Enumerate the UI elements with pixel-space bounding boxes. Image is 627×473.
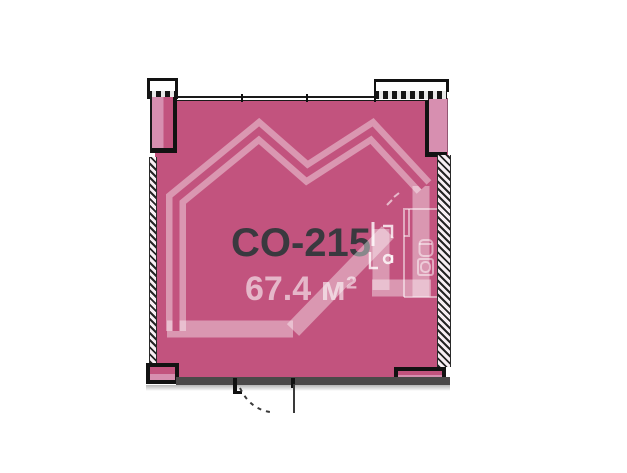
wall-shadow [146,385,450,391]
glazed-wall-left [149,157,157,363]
window-mullion [306,94,308,102]
balcony-tab-left [147,78,178,92]
unit-area-highlight[interactable] [155,157,437,377]
door-jamb-hook [233,391,242,394]
shaft-wall-left [425,97,429,157]
wall-bottom [176,377,450,385]
wall-bracket-bottom-left [146,363,179,384]
wall-pilaster-top-left [150,97,177,153]
duct-shaft [429,98,448,152]
glazed-wall-right [437,155,451,367]
floorplan-canvas: CO-215 67.4 м² [0,0,627,473]
window-mullion [241,94,243,102]
hatched-wall-top-right [374,91,447,99]
unit-area-label: 67.4 м² [224,272,378,306]
unit-id-label: CO-215 [226,223,376,263]
door-leaf [293,384,295,413]
unit-area-highlight[interactable] [155,100,448,158]
